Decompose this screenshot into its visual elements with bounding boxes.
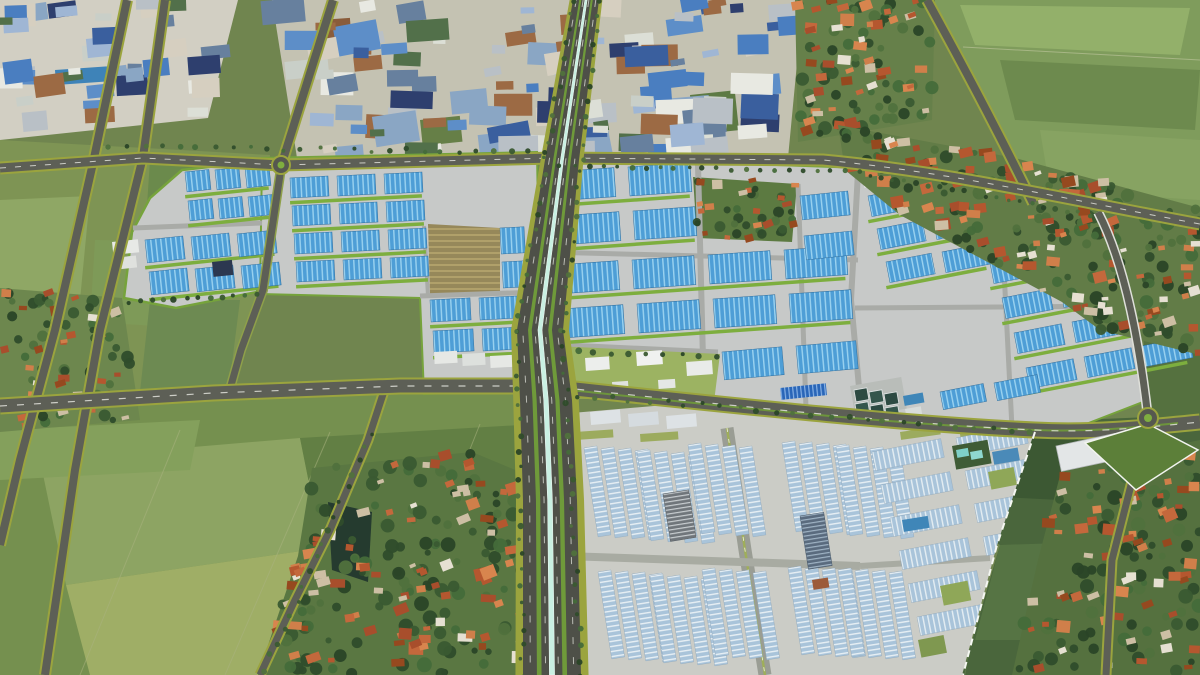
admin-building bbox=[658, 379, 676, 389]
field-patch bbox=[140, 300, 240, 395]
white-warehouse bbox=[462, 353, 486, 366]
roundabout-island bbox=[278, 162, 285, 169]
aerial-render-viewport bbox=[0, 0, 1200, 675]
admin-building bbox=[585, 356, 610, 371]
white-warehouse bbox=[490, 355, 513, 368]
farm-inset bbox=[428, 224, 500, 294]
admin-building bbox=[636, 350, 663, 366]
treatment-pond bbox=[854, 388, 869, 402]
treatment-pond bbox=[884, 392, 899, 406]
industrial-park-aerial-render bbox=[0, 0, 1200, 675]
admin-building bbox=[686, 360, 713, 376]
pale-office bbox=[628, 411, 659, 427]
pale-office bbox=[666, 413, 697, 429]
solar-roof-building bbox=[212, 260, 233, 277]
white-warehouse bbox=[434, 351, 458, 364]
pale-office bbox=[590, 409, 621, 425]
roundabout-island bbox=[1144, 414, 1152, 422]
treatment-pond bbox=[869, 390, 884, 404]
field-patch bbox=[1000, 60, 1200, 130]
